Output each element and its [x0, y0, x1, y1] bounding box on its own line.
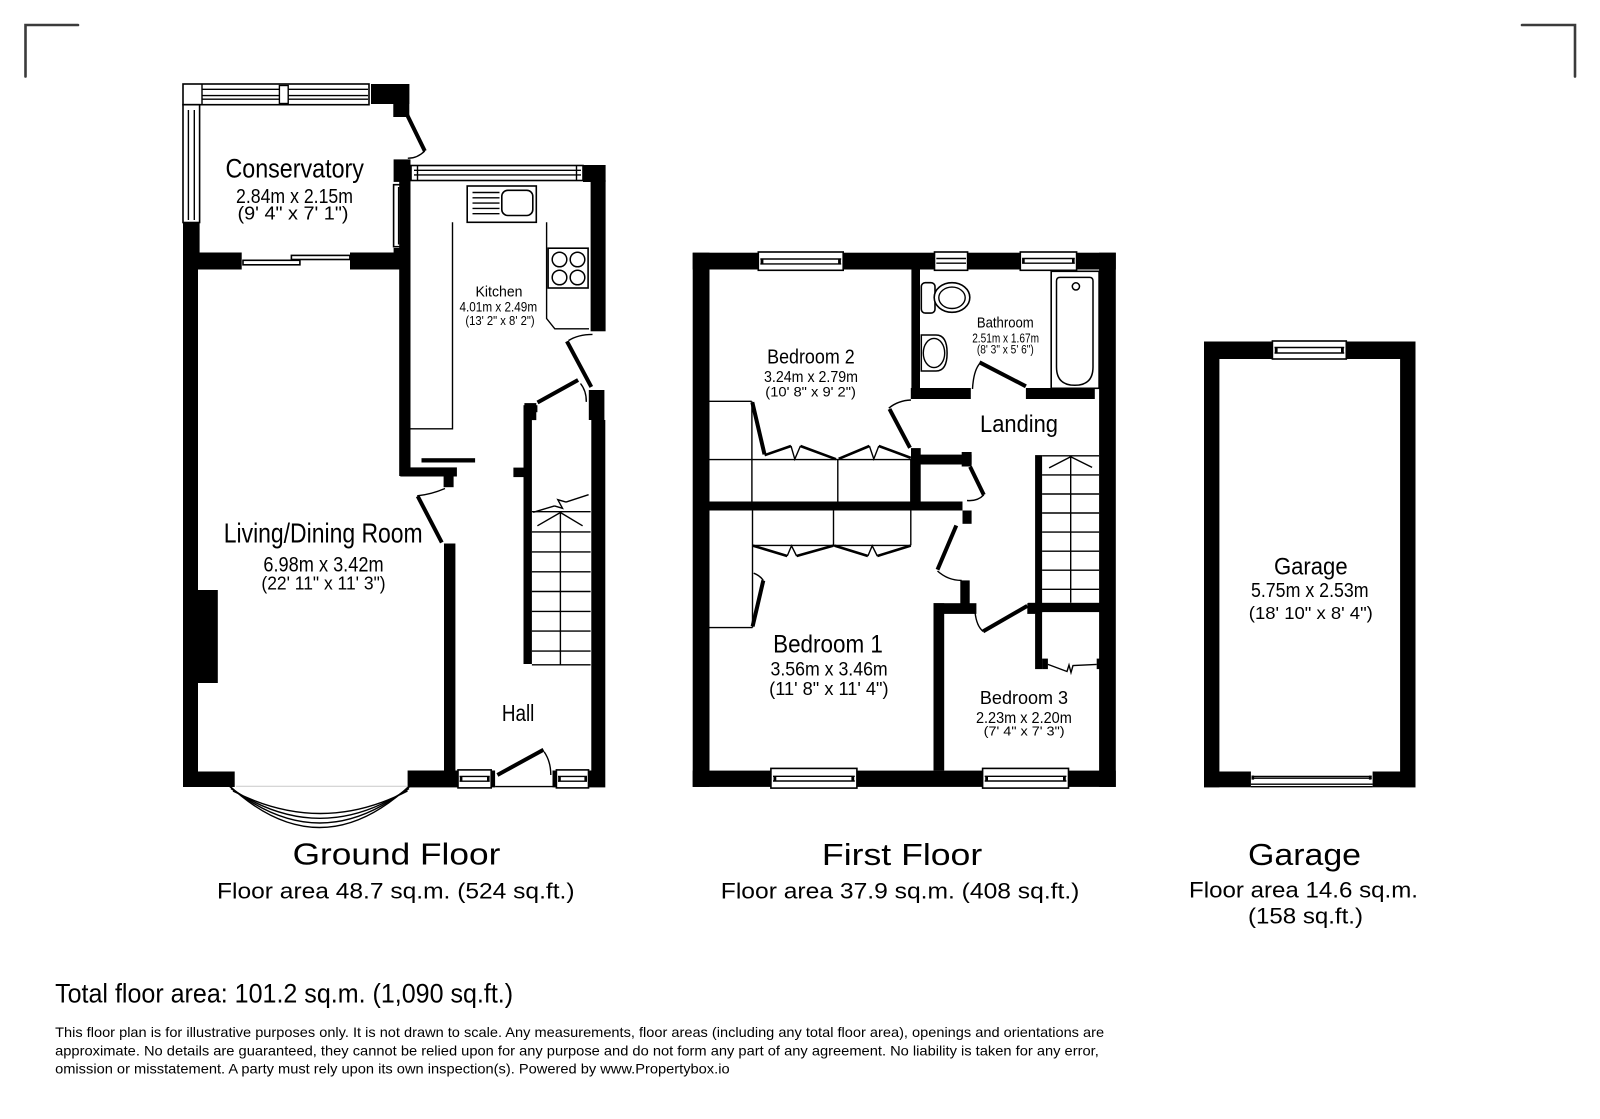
svg-text:2.51m x 1.67m: 2.51m x 1.67m [972, 331, 1039, 346]
svg-text:First Floor: First Floor [822, 838, 982, 872]
svg-text:4.01m x 2.49m: 4.01m x 2.49m [460, 300, 538, 315]
svg-text:Bedroom 2: Bedroom 2 [767, 346, 855, 369]
svg-text:Hall: Hall [502, 700, 535, 726]
svg-text:Garage: Garage [1274, 554, 1348, 581]
svg-text:(8' 3" x 5' 6"): (8' 3" x 5' 6") [977, 345, 1034, 357]
svg-text:(7' 4" x 7' 3"): (7' 4" x 7' 3") [984, 723, 1065, 738]
svg-text:Floor area 14.6 sq.m.: Floor area 14.6 sq.m. [1189, 878, 1418, 903]
svg-text:Living/Dining Room: Living/Dining Room [224, 518, 423, 549]
svg-text:Kitchen: Kitchen [476, 284, 523, 301]
svg-text:5.75m x 2.53m: 5.75m x 2.53m [1251, 580, 1369, 602]
svg-text:Landing: Landing [980, 411, 1058, 438]
svg-text:(10' 8" x 9' 2"): (10' 8" x 9' 2") [765, 384, 856, 400]
svg-text:(158 sq.ft.): (158 sq.ft.) [1248, 903, 1363, 928]
svg-text:(11' 8" x 11' 4"): (11' 8" x 11' 4") [769, 679, 888, 699]
svg-text:Bedroom 3: Bedroom 3 [980, 687, 1068, 708]
svg-text:This floor plan is for illustr: This floor plan is for illustrative purp… [55, 1024, 1104, 1040]
svg-text:omission or misstatement. A pa: omission or misstatement. A party must r… [55, 1060, 730, 1076]
svg-text:3.56m x 3.46m: 3.56m x 3.46m [771, 659, 888, 681]
svg-text:(9' 4" x 7' 1"): (9' 4" x 7' 1") [238, 204, 349, 224]
svg-text:Garage: Garage [1248, 838, 1361, 872]
svg-text:Floor area 37.9 sq.m. (408 sq.: Floor area 37.9 sq.m. (408 sq.ft.) [721, 879, 1080, 904]
svg-text:Ground Floor: Ground Floor [293, 838, 501, 872]
svg-text:Floor area 48.7 sq.m. (524 sq.: Floor area 48.7 sq.m. (524 sq.ft.) [217, 878, 575, 903]
svg-text:(18' 10" x 8' 4"): (18' 10" x 8' 4") [1249, 603, 1373, 623]
svg-text:Bedroom 1: Bedroom 1 [773, 631, 883, 659]
svg-text:(22' 11" x 11' 3"): (22' 11" x 11' 3") [261, 573, 385, 594]
svg-text:(13' 2" x 8' 2"): (13' 2" x 8' 2") [465, 314, 534, 328]
svg-text:Bathroom: Bathroom [977, 315, 1034, 332]
svg-text:Total floor area: 101.2 sq.m.: Total floor area: 101.2 sq.m. (1,090 sq.… [55, 979, 513, 1009]
svg-text:Conservatory: Conservatory [225, 154, 364, 184]
svg-text:approximate. No details are gu: approximate. No details are guaranteed, … [55, 1043, 1099, 1059]
